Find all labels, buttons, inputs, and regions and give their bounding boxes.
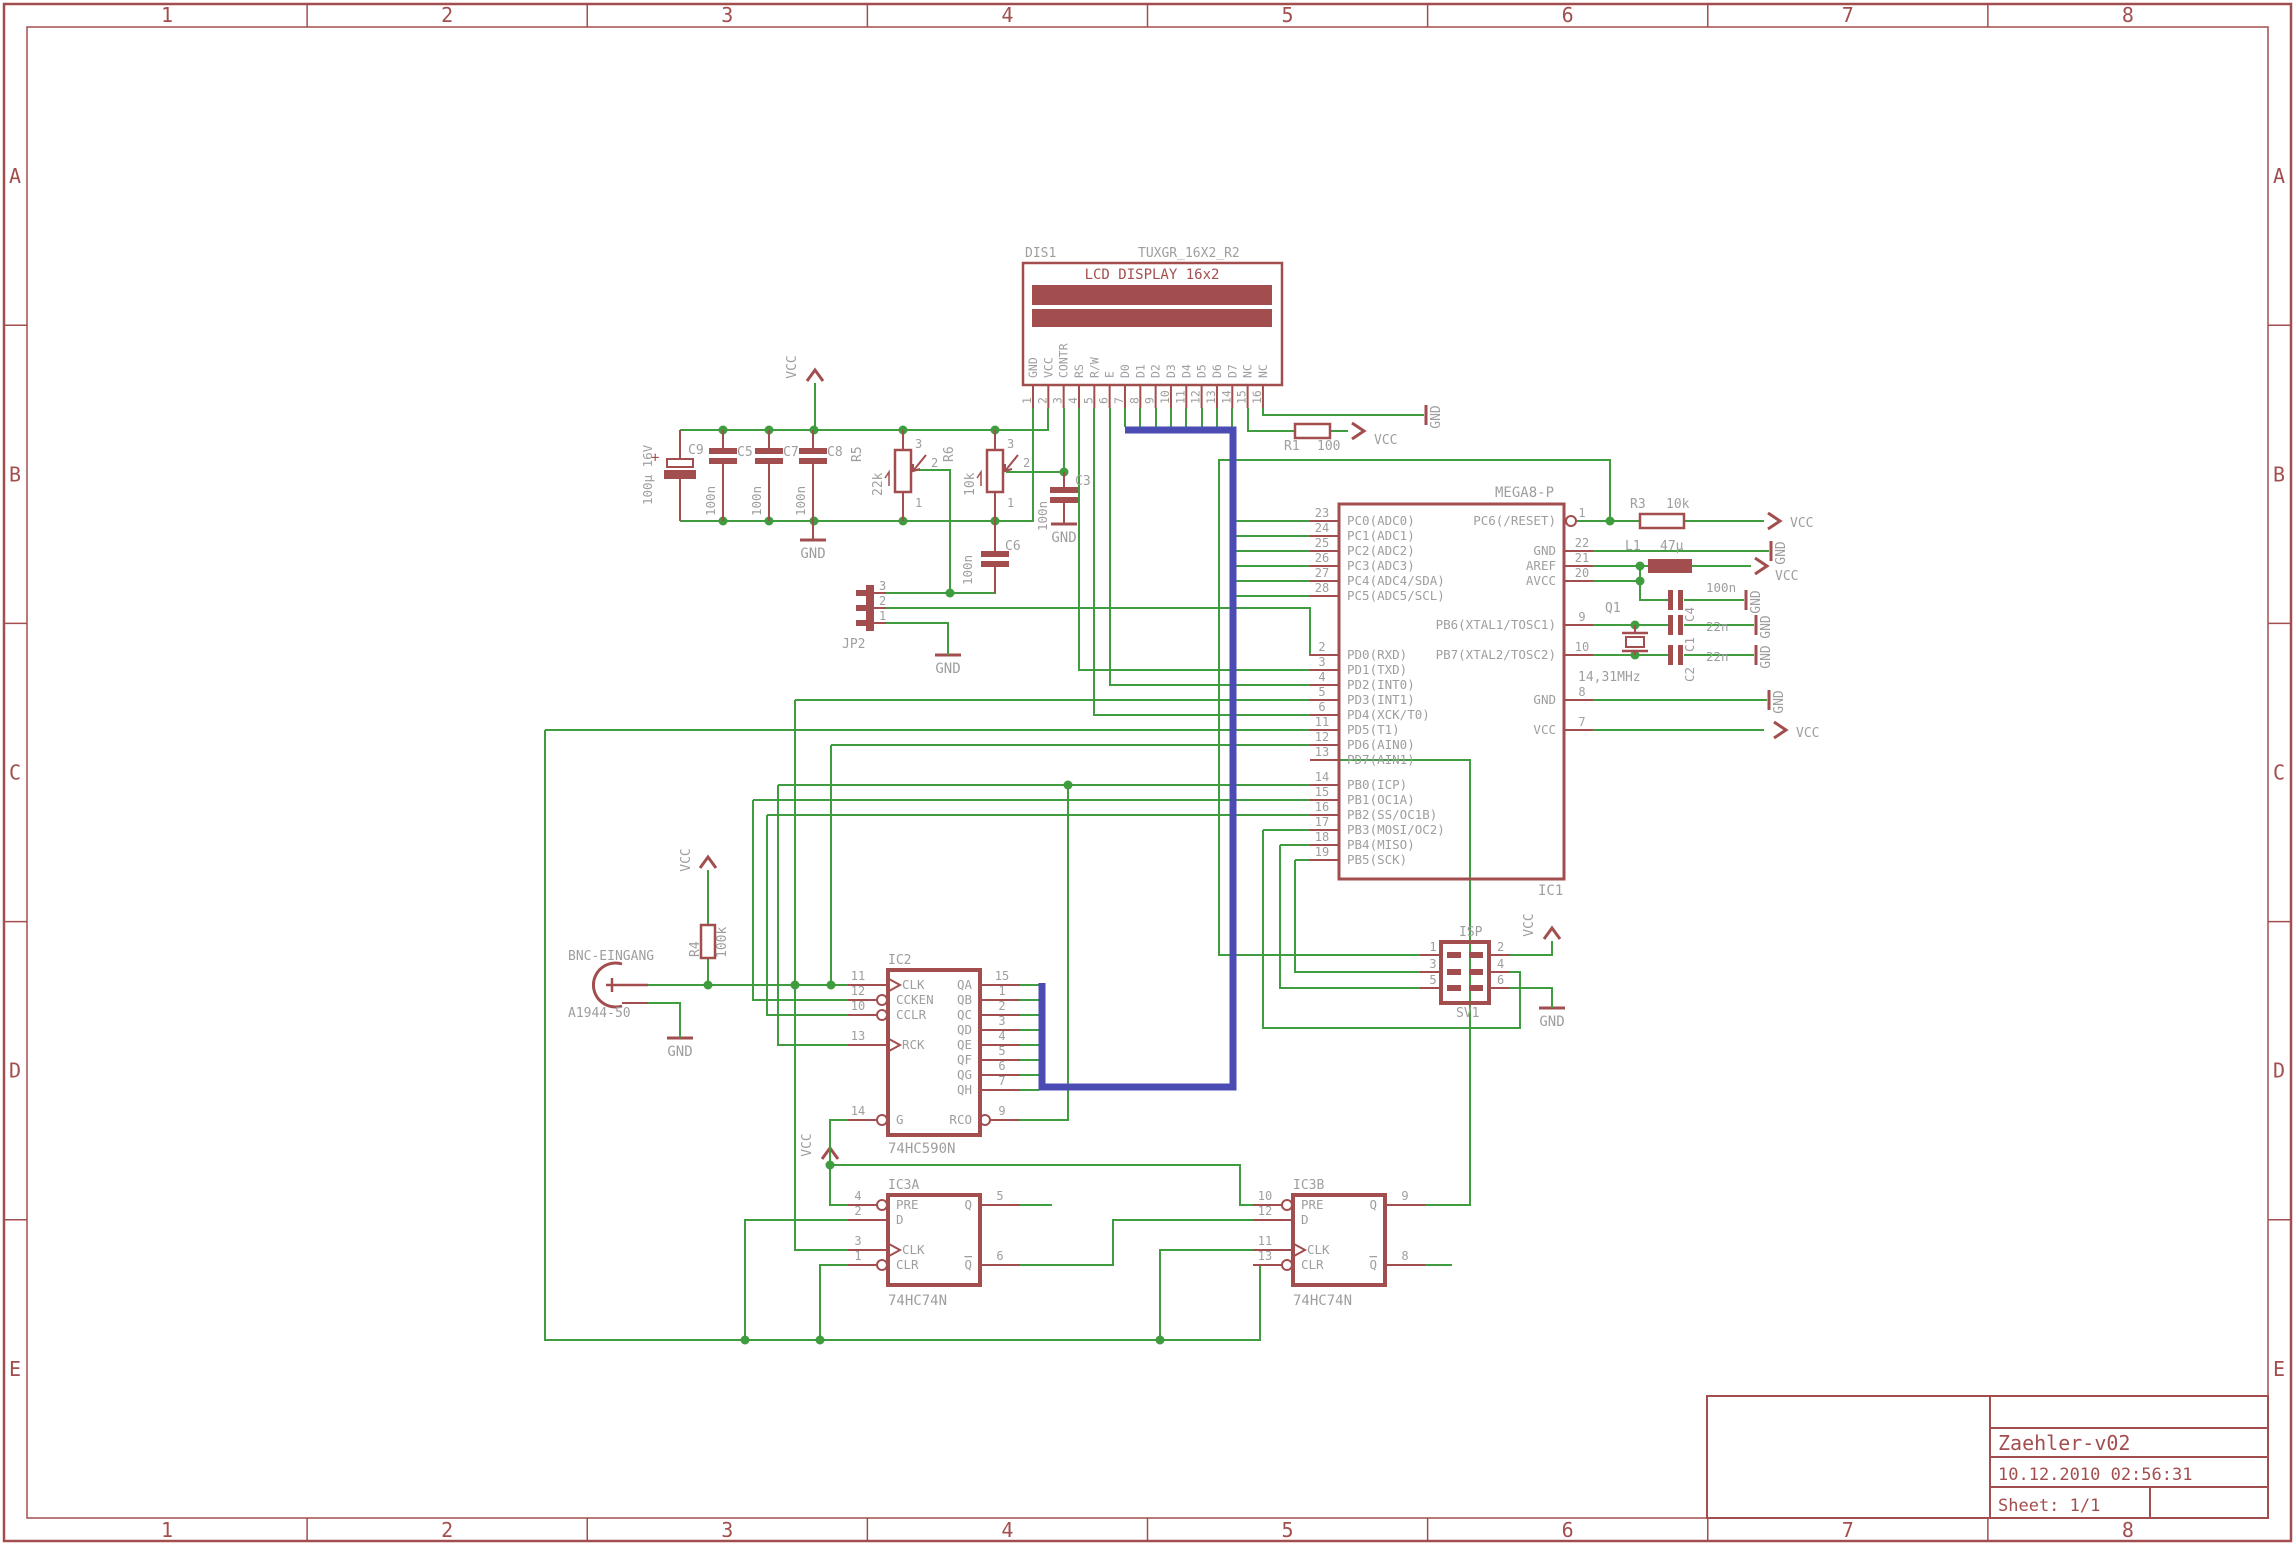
junction-dot (1636, 577, 1645, 586)
value-label: 100n (1035, 501, 1050, 531)
pin-name: D0 (1118, 364, 1132, 378)
pin-number: 7 (998, 1074, 1005, 1088)
pin-name: G (896, 1112, 904, 1127)
frame-row-label: B (2273, 462, 2285, 486)
component-r1[interactable]: R1100 (1284, 424, 1340, 454)
pin-number: 12 (851, 984, 865, 998)
pin-number: 1 (1007, 496, 1014, 510)
value-label: 100n (793, 486, 808, 516)
segment (778, 785, 848, 1045)
pin-number: 24 (1315, 521, 1329, 535)
gnd-symbol-label: GND (1759, 645, 1774, 669)
pin-number: 9 (1578, 610, 1585, 624)
pot-body (895, 450, 911, 492)
frame-row-label: D (2273, 1059, 2285, 1083)
pin-name: QE (957, 1037, 972, 1052)
junction-dot (791, 981, 800, 990)
segment (889, 979, 900, 991)
part-label: 74HC74N (888, 1293, 947, 1309)
pin-number: 13 (851, 1029, 865, 1043)
pin-name: PRE (896, 1197, 919, 1212)
header-pad (1469, 969, 1483, 975)
pin-name: PD4(XCK/T0) (1347, 707, 1430, 722)
pin-number: 22 (1575, 536, 1589, 550)
pin-name: D6 (1210, 364, 1224, 378)
component-r3[interactable]: R310k (1630, 497, 1690, 528)
value-label: 14,31MHz (1578, 670, 1641, 685)
gnd-symbol-label: GND (1759, 615, 1774, 639)
part-label: 74HC74N (1293, 1293, 1352, 1309)
gnd-symbol-label: GND (1749, 590, 1764, 614)
pin-number: 3 (915, 437, 922, 451)
gnd-symbol-label: GND (1772, 690, 1787, 714)
value-label: 100n (749, 486, 764, 516)
pin-number: 6 (1318, 700, 1325, 714)
vcc-label: VCC (1790, 516, 1813, 531)
segment (886, 623, 948, 655)
pin-number: 3 (1318, 655, 1325, 669)
pin-number: 3 (879, 579, 886, 593)
resistor-body (701, 925, 715, 958)
pin-number: 5 (1429, 973, 1436, 987)
segment (1160, 1250, 1253, 1340)
pin-name: CCLR (896, 1007, 927, 1022)
ref-label: R3 (1630, 497, 1646, 512)
ref-label: R5 (850, 446, 865, 462)
pin-number: 4 (1497, 957, 1504, 971)
component-c6[interactable]: C6100n (960, 521, 1021, 593)
component-c1[interactable]: C122n (1668, 615, 1729, 652)
pin-name: D3 (1164, 364, 1178, 378)
pin-name: NC (1241, 364, 1255, 378)
header-pad (1447, 985, 1461, 991)
header-pad (1447, 952, 1461, 958)
pin-number: 1 (1020, 397, 1034, 404)
segment (1774, 722, 1786, 738)
component-jp2[interactable]: 321JP2 (842, 579, 886, 652)
value-label: 100µ 16V (640, 444, 655, 505)
segment (1352, 423, 1364, 439)
pin-number: 5 (998, 1044, 1005, 1058)
pin-number: 2 (931, 456, 938, 470)
pin-number: 4 (998, 1029, 1005, 1043)
pin-name: PC5(ADC5/SCL) (1347, 588, 1445, 603)
wires[interactable] (545, 383, 1769, 1345)
pin-number: 11 (851, 969, 865, 983)
inverter-bubble-icon (877, 1200, 887, 1210)
pin-name: PD3(INT1) (1347, 692, 1415, 707)
junction-dot (741, 1336, 750, 1345)
segment (1755, 558, 1767, 574)
frame-row-label: E (2273, 1357, 2285, 1381)
title-block-sheet: Sheet: 1/1 (1998, 1496, 2100, 1516)
pin-name: PC4(ADC4/SDA) (1347, 573, 1445, 588)
segment (1768, 513, 1780, 529)
pin-number: 2 (879, 594, 886, 608)
frame-column-label: 4 (1001, 3, 1013, 27)
cap-plate (755, 448, 783, 454)
resistor-body (1640, 514, 1684, 528)
pin-number: 14 (851, 1104, 865, 1118)
ref-label: IC3A (888, 1178, 919, 1193)
header-pad (1469, 985, 1483, 991)
title-block-title: Zaehler-v02 (1998, 1431, 2130, 1455)
pin-name: R/W (1087, 357, 1101, 378)
frame-outer (4, 4, 2291, 1541)
junction-dot (704, 981, 713, 990)
segment (1263, 408, 1424, 415)
value-label: 47µ (1660, 539, 1684, 554)
data-bus[interactable] (1042, 430, 1233, 1087)
pin-name: Q (964, 1197, 972, 1212)
frame-column-label: 7 (1842, 3, 1854, 27)
cap-plate (1668, 590, 1673, 610)
gnd-symbol-label: GND (935, 661, 960, 677)
segment (795, 700, 848, 1250)
pin-number: 13 (1258, 1249, 1272, 1263)
ref-label: C9 (688, 443, 704, 458)
pin-number: 9 (1401, 1189, 1408, 1203)
pin-number: 13 (1315, 745, 1329, 759)
pin-name: NC (1256, 364, 1270, 378)
pin-name: PD7(AIN1) (1347, 752, 1415, 767)
pin-name: D (1301, 1212, 1309, 1227)
frame-column-label: 8 (2122, 1518, 2134, 1542)
pin-name: PB4(MISO) (1347, 837, 1415, 852)
pin-number: 8 (1401, 1249, 1408, 1263)
segment (1640, 581, 1668, 600)
pin-name: PRE (1301, 1197, 1324, 1212)
pin-number: 16 (1315, 800, 1329, 814)
ref-label: JP2 (842, 637, 865, 652)
crystal-body (1626, 637, 1644, 647)
frame-column-label: 7 (1842, 1518, 1854, 1542)
segment (1020, 1220, 1253, 1265)
segment (830, 1165, 848, 1205)
pin-number: 4 (1318, 670, 1325, 684)
ref-label: C4 (1682, 607, 1697, 622)
pin-number: 25 (1315, 536, 1329, 550)
pin-number: 10 (1158, 390, 1172, 404)
pin-number: 15 (1235, 390, 1249, 404)
pin-number: 12 (1258, 1204, 1272, 1218)
pin-name: CLK (1307, 1242, 1330, 1257)
pin-number: 11 (1315, 715, 1329, 729)
pin-number: 7 (1578, 715, 1585, 729)
ref-label: C2 (1682, 667, 1697, 682)
pin-name: RCK (902, 1037, 925, 1052)
pin-number: 1 (1429, 940, 1436, 954)
pin-number: 11 (1258, 1234, 1272, 1248)
pin-name: PC0(ADC0) (1347, 513, 1415, 528)
segment (914, 470, 950, 593)
ref-label: SV1 (1456, 1006, 1479, 1021)
segment (1094, 408, 1339, 715)
component-c2[interactable]: C222n (1668, 645, 1729, 682)
pin-name: PC1(ADC1) (1347, 528, 1415, 543)
component-flipflop_a[interactable]: IC3A74HC74N4PRE2D3CLK1CLR5Q6Q (848, 1178, 1020, 1309)
vcc-label: VCC (800, 1133, 815, 1156)
frame-column-label: 5 (1282, 3, 1294, 27)
junction-dot (816, 1336, 825, 1345)
cap-plate (799, 448, 827, 454)
inverter-bubble-icon (877, 1010, 887, 1020)
pin-number: 2 (998, 999, 1005, 1013)
junction-dot (1636, 562, 1645, 571)
pin-name: QC (957, 1007, 972, 1022)
value-label: 100 (1317, 439, 1340, 454)
pin-name: CLK (902, 1242, 925, 1257)
pin-number: 4 (1066, 397, 1080, 404)
header-pad (1469, 952, 1483, 958)
pin-name: PD1(TXD) (1347, 662, 1407, 677)
pin-number: 6 (998, 1059, 1005, 1073)
pin-number: 2 (1023, 456, 1030, 470)
inductor-body (1648, 559, 1692, 573)
ref-label: C3 (1075, 474, 1091, 489)
gnd-symbol-label: GND (667, 1044, 692, 1060)
pin-number: 3 (1007, 437, 1014, 451)
ref-label: IC3B (1293, 1178, 1324, 1193)
cap-plate (755, 458, 783, 464)
component-counter-74hc590[interactable]: IC274HC590N11CLK12CCKEN10CCLR13RCK14G15Q… (848, 953, 1020, 1157)
connector-label: ISP (1459, 925, 1483, 940)
pin-number: 12 (1315, 730, 1329, 744)
ref-label: C6 (1005, 539, 1021, 554)
pin-name: PB0(ICP) (1347, 777, 1407, 792)
lcd-row2 (1032, 309, 1272, 327)
pin-name: GND (1533, 543, 1556, 558)
ref-label: C7 (783, 445, 799, 460)
frame-column-label: 1 (161, 3, 173, 27)
value-label: 100k (715, 927, 730, 958)
pin-name: PC6(/RESET) (1473, 513, 1556, 528)
pin-name: PB5(SCK) (1347, 852, 1407, 867)
segment (1294, 1244, 1305, 1256)
component-c3[interactable]: C3100n (1035, 472, 1091, 531)
part-label: TUXGR_16X2_R2 (1138, 246, 1240, 261)
pin-name: PD6(AIN0) (1347, 737, 1415, 752)
pin-number: 10 (851, 999, 865, 1013)
pin-name: PD0(RXD) (1347, 647, 1407, 662)
pin-number: 7 (1112, 397, 1126, 404)
component-r6[interactable]: R610k321 (942, 430, 1030, 521)
pin-number: 2 (1035, 397, 1049, 404)
frame-column-label: 3 (721, 3, 733, 27)
segment (1544, 928, 1560, 939)
segment (1110, 408, 1339, 685)
component-l1[interactable]: L147µ (1625, 539, 1692, 573)
cap-plate (667, 459, 693, 467)
pin-number: 17 (1315, 815, 1329, 829)
pin-number: 8 (1127, 397, 1141, 404)
pin-number: 5 (1318, 685, 1325, 699)
frame-column-label: 4 (1001, 1518, 1013, 1542)
vcc-label: VCC (1775, 569, 1798, 584)
component-flipflop_b[interactable]: IC3B74HC74N10PRE12D11CLK13CLR9Q8Q (1253, 1178, 1425, 1309)
frame-row-label: D (9, 1059, 21, 1083)
inverter-bubble-icon (877, 1115, 887, 1125)
jumper-pad (856, 590, 866, 596)
pin-number: 26 (1315, 551, 1329, 565)
pin-name: D2 (1149, 364, 1163, 378)
frame-column-label: 3 (721, 1518, 733, 1542)
frame-column-label: 6 (1562, 3, 1574, 27)
pin-name: PD2(INT0) (1347, 677, 1415, 692)
ref-label: R4 (688, 941, 703, 957)
pin-number: 12 (1189, 390, 1203, 404)
pin-name: CLR (1301, 1257, 1324, 1272)
frame-row-label: C (9, 761, 21, 785)
cap-plate (1668, 645, 1673, 665)
pin-name: D1 (1133, 364, 1147, 378)
component-mcu-mega8[interactable]: MEGA8-PIC123PC0(ADC0)24PC1(ADC1)25PC2(AD… (1310, 485, 1593, 899)
component-lcd-display[interactable]: DIS1TUXGR_16X2_R2LCD DISPLAY 16x2GND1VCC… (1020, 246, 1282, 408)
cap-plate (709, 448, 737, 454)
frame-column-label: 1 (161, 1518, 173, 1542)
pin-name: VCC (1533, 722, 1556, 737)
part-label: A1944-50 (568, 1006, 631, 1021)
pin-number: 3 (1429, 957, 1436, 971)
jumper-pad (856, 620, 866, 626)
value-label: 100n (703, 486, 718, 516)
pin-name: Q (1369, 1257, 1377, 1272)
vcc-label: VCC (1522, 913, 1537, 936)
component-isp-header[interactable]: ISPSV1123456 (1420, 925, 1510, 1021)
pin-name: E (1103, 371, 1117, 378)
pin-number: 6 (1497, 973, 1504, 987)
pin-number: 5 (1081, 397, 1095, 404)
frame-row-label: A (2273, 164, 2285, 188)
inverter-bubble-icon (1566, 516, 1576, 526)
pin-number: 3 (998, 1014, 1005, 1028)
component-cap-bank[interactable]: +C9100µ 16VC5100nC7100nC8100n (640, 430, 843, 540)
segment (889, 1244, 900, 1256)
ref-label: IC2 (888, 953, 911, 968)
pin-number: 21 (1575, 551, 1589, 565)
pin-name: AVCC (1526, 573, 1556, 588)
pin-name: PB1(OC1A) (1347, 792, 1415, 807)
cap-plate (981, 561, 1009, 567)
vcc-label: VCC (785, 355, 800, 378)
pin-number: 3 (854, 1234, 861, 1248)
frame-column-label: 6 (1562, 1518, 1574, 1542)
jumper-bar (866, 585, 874, 631)
vcc-label: VCC (1796, 726, 1819, 741)
pin-number: 10 (1575, 640, 1589, 654)
cap-plate (1668, 615, 1673, 635)
resistor-body (1295, 424, 1330, 438)
vcc-label: VCC (679, 848, 694, 871)
header-pad (1447, 969, 1461, 975)
lcd-title: LCD DISPLAY 16x2 (1085, 267, 1220, 283)
pin-number: 3 (1051, 397, 1065, 404)
cap-plate (1050, 487, 1078, 493)
ref-label: C5 (737, 445, 753, 460)
pin-number: 18 (1315, 830, 1329, 844)
value-label: 22n (1706, 619, 1729, 634)
pin-name: PD5(T1) (1347, 722, 1400, 737)
gnd-symbol-label: GND (1774, 541, 1789, 565)
value-label: 100n (1706, 580, 1736, 595)
pin-name: QB (957, 992, 972, 1007)
segment (1510, 941, 1552, 955)
part-label: 74HC590N (888, 1141, 955, 1157)
pin-name: Q (964, 1257, 972, 1272)
pin-number: 2 (854, 1204, 861, 1218)
frame-column-label: 8 (2122, 3, 2134, 27)
cap-plate (799, 458, 827, 464)
component-r5[interactable]: R522k321 (850, 430, 938, 521)
part-label: MEGA8-P (1495, 485, 1554, 501)
pin-number: 9 (998, 1104, 1005, 1118)
ref-label: C8 (827, 445, 843, 460)
pin-number: 10 (1258, 1189, 1272, 1203)
pin-name: RS (1072, 364, 1086, 378)
junction-dot (1606, 517, 1615, 526)
segment (745, 1220, 848, 1340)
pin-name: PB2(SS/OC1B) (1347, 807, 1437, 822)
segment (1248, 408, 1295, 431)
pin-number: 14 (1219, 390, 1233, 404)
pot-body (987, 450, 1003, 492)
pin-name: PB3(MOSI/OC2) (1347, 822, 1445, 837)
pin-number: 15 (995, 969, 1009, 983)
frame-row-label: B (9, 462, 21, 486)
pin-number: 1 (1578, 506, 1585, 520)
junction-dot (1156, 1336, 1165, 1345)
vcc-label: VCC (1374, 433, 1397, 448)
pin-name: GND (1533, 692, 1556, 707)
schematic-drawing: VCCGNDVCCGNDGNDGNDVCCGNDVCCGNDGNDGNDGNDV… (0, 0, 2295, 1545)
segment (1042, 430, 1233, 1087)
ref-label: DIS1 (1025, 246, 1056, 261)
pin-name: D (896, 1212, 904, 1227)
pin-name: PC2(ADC2) (1347, 543, 1415, 558)
pin-number: 13 (1204, 390, 1218, 404)
pin-name: CONTR (1057, 343, 1071, 378)
value-label: 22k (871, 472, 886, 496)
ref-label: R6 (942, 446, 957, 462)
pin-number: 2 (1318, 640, 1325, 654)
junction-dot (827, 981, 836, 990)
pin-name: Q (1369, 1197, 1377, 1212)
pin-number: 9 (1143, 397, 1157, 404)
value-label: 10k (963, 472, 978, 496)
component-bnc[interactable]: BNC-EINGANGA1944-50R4100k (568, 925, 730, 1021)
pin-number: 1 (915, 496, 922, 510)
pin-number: 8 (1578, 685, 1585, 699)
segment (1510, 988, 1552, 1008)
gnd-symbol-label: GND (1429, 405, 1444, 429)
frame-column-label: 2 (441, 3, 453, 27)
junction-dot (946, 589, 955, 598)
pin-number: 5 (996, 1189, 1003, 1203)
junction-dot (826, 1161, 835, 1170)
segment (1079, 408, 1339, 670)
pin-number: 14 (1315, 770, 1329, 784)
gnd-symbol-label: GND (1539, 1014, 1564, 1030)
segment (889, 1039, 900, 1051)
segment (700, 857, 716, 868)
frame-column-label: 2 (441, 1518, 453, 1542)
pin-number: 23 (1315, 506, 1329, 520)
frame-row-label: E (9, 1357, 21, 1381)
pin-name: CCKEN (896, 992, 934, 1007)
cap-plate (1678, 645, 1683, 665)
title-block-timestamp: 10.12.2010 02:56:31 (1998, 1465, 2192, 1485)
pin-name: PC3(ADC3) (1347, 558, 1415, 573)
